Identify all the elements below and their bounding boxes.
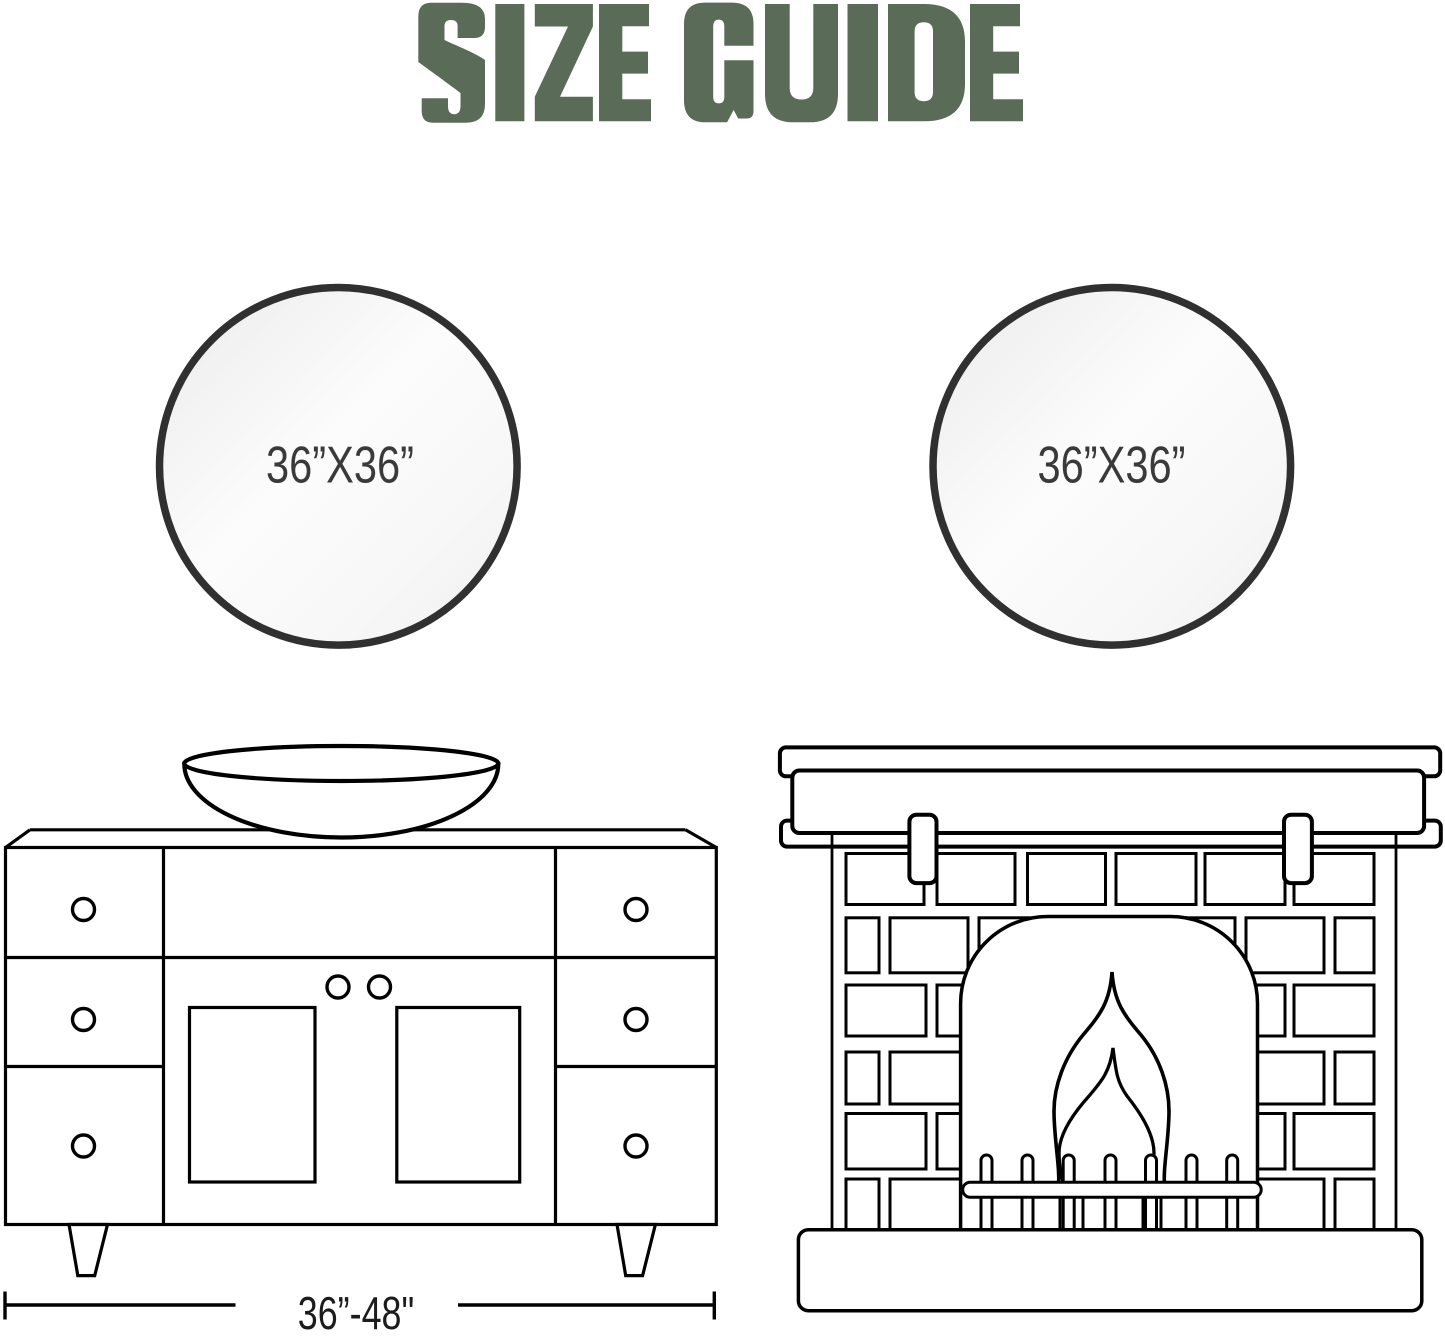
svg-text:36”-48": 36”-48"	[298, 1288, 414, 1338]
svg-text:36”X36”: 36”X36”	[266, 435, 414, 494]
svg-text:36”X36”: 36”X36”	[1038, 435, 1186, 494]
